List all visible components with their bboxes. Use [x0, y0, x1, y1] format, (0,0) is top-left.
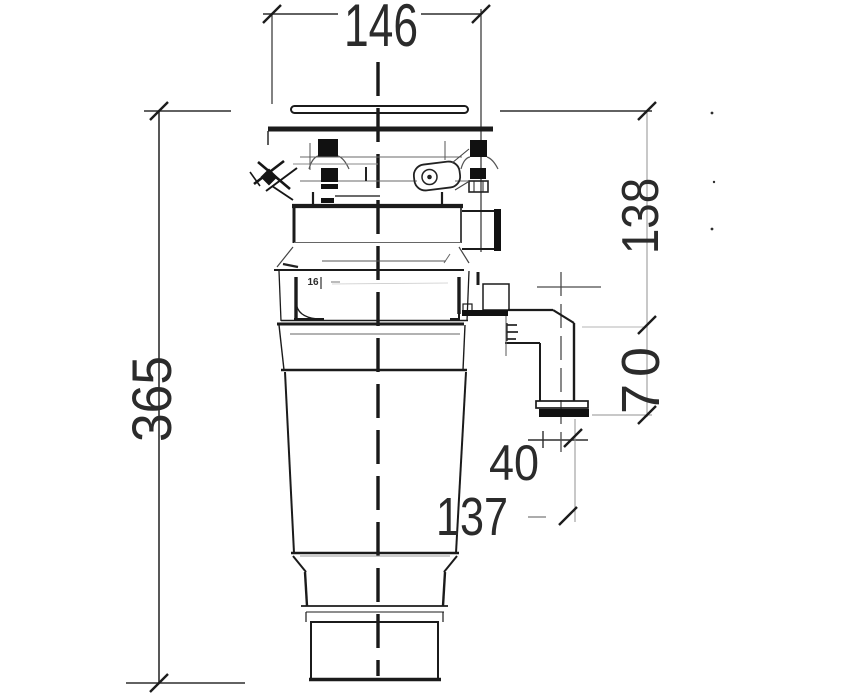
dimension-label-138: 138 — [615, 178, 667, 254]
dimension-label-137: 137 — [436, 490, 508, 544]
discharge-elbow — [462, 272, 589, 417]
reset-capsule-detail — [413, 149, 469, 192]
dimension-label-365: 365 — [124, 356, 180, 442]
mount-screw-detail — [469, 168, 488, 192]
paper-speckles — [711, 112, 716, 231]
sink-flange — [268, 106, 493, 145]
dimension-label-146: 146 — [344, 0, 418, 56]
dimension-label-70: 70 — [614, 340, 668, 414]
motor-housing — [277, 324, 467, 622]
clamp-hatch-detail — [250, 161, 297, 200]
detail-label-16: 16 — [307, 278, 318, 288]
technical-drawing-page: 146 365 138 70 40 137 16 — [0, 0, 856, 700]
elbow-clamp-detail — [507, 323, 518, 341]
bottom-cap — [309, 622, 441, 680]
mount-bolt-left — [318, 139, 338, 157]
upper-housing — [274, 206, 469, 270]
centerline-outlet — [537, 272, 601, 452]
dimension-label-40: 40 — [489, 438, 539, 488]
mount-bolt-right — [470, 140, 487, 157]
waste-disposer-drawing — [0, 0, 856, 700]
mounting-assembly — [250, 139, 498, 205]
dimension-ticks — [150, 5, 656, 692]
